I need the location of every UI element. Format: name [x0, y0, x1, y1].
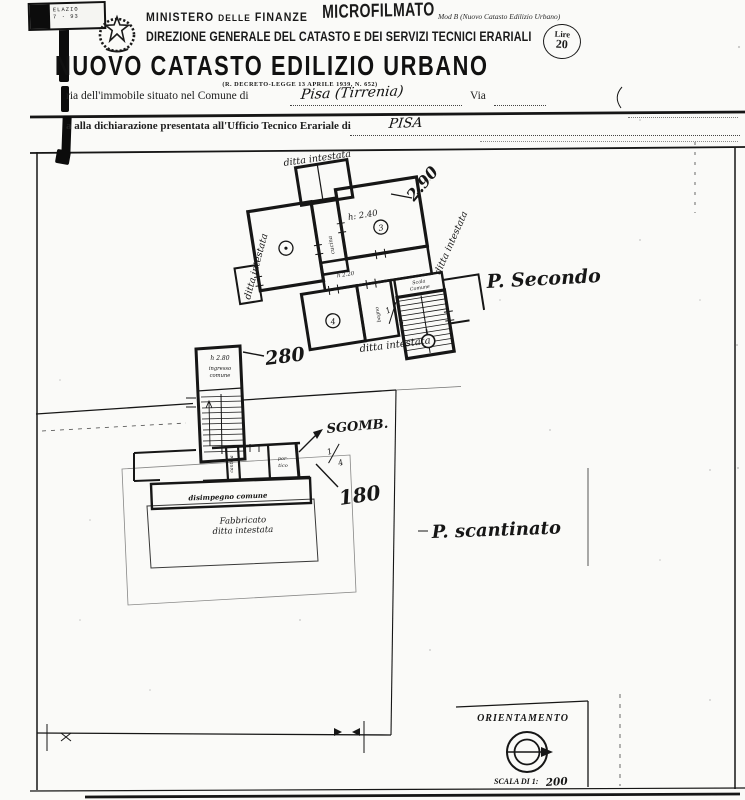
binding-mark — [55, 149, 71, 165]
extra-dotted-row-bottom — [480, 140, 738, 142]
direction-line: DIREZIONE GENERALE DEL CATASTO E DEI SER… — [146, 29, 532, 44]
fraction-one-fourth: 1 4 — [324, 444, 346, 471]
ministry-word: FINANZE — [251, 10, 308, 24]
comune-fill-line — [290, 104, 462, 106]
room-label-kitchen: cucina — [328, 235, 337, 254]
sgomb-label: SGOMB. — [326, 417, 389, 437]
ufficio-handwritten-value: PISA — [388, 115, 423, 132]
strip-label-line1: ingresso — [209, 366, 231, 372]
document-title: NUOVO CATASTO EDILIZIO URBANO — [55, 50, 489, 82]
parcel-boundary — [36, 387, 461, 754]
basement-plan: h 2.80 ingresso comune 280 cantina por- … — [122, 343, 389, 605]
room-label-portico-2: tico — [278, 463, 287, 469]
orientation-title: ORIENTAMENTO — [477, 713, 569, 724]
ufficio-fill-line — [350, 134, 740, 136]
height-dimension-180: 180 — [337, 480, 382, 510]
frame-borders — [30, 87, 745, 797]
microfilm-stamp: MICROFILMATO — [322, 0, 435, 24]
second-floor-title: P. Secondo — [485, 265, 602, 293]
fabbricato-label-2: ditta intestata — [212, 525, 273, 537]
via-label: Via — [470, 90, 486, 102]
ministry-word: MINISTERO — [146, 10, 218, 24]
ditta-intestata-bottom: ditta intestata — [359, 335, 431, 355]
mod-b-label: Mod B (Nuovo Catasto Edilizio Urbano) — [438, 12, 560, 21]
basement-title: P. scantinato — [430, 518, 561, 544]
orientation-box: ORIENTAMENTO SCALA DI 1: 200 — [456, 701, 588, 789]
ufficio-line-prefix: a alla dichiarazione presentata all'Uffi… — [66, 120, 351, 132]
room-height-note: h: 2.40 — [347, 208, 379, 223]
svg-text:1: 1 — [326, 447, 334, 457]
fee-amount: 20 — [544, 38, 581, 51]
extra-dotted-row-top — [628, 116, 738, 118]
document-subtitle: (R. DECRETO-LEGGE 13 APRILE 1939, N. 652… — [60, 81, 540, 88]
stamp-ink-block — [30, 4, 51, 29]
scan-noise — [59, 46, 740, 701]
scale-label: SCALA DI 1: — [494, 777, 539, 786]
via-fill-line — [494, 104, 546, 106]
svg-text:1: 1 — [384, 305, 392, 315]
scanned-document-page: h: 2.40 3 4 h 2.20 cucina bagno Scala Co… — [0, 0, 745, 800]
svg-text:4: 4 — [336, 458, 345, 468]
strip-height-note: h 2.80 — [210, 355, 229, 362]
strip-label-line2: comune — [210, 373, 231, 379]
room-label-cantina: cantina — [229, 455, 235, 473]
scale-value: 200 — [544, 775, 568, 789]
room-number: 3 — [378, 223, 384, 233]
ministry-line: MINISTERO DELLE FINANZE — [146, 10, 308, 24]
comune-line-prefix: ria dell'immobile situato nel Comune di — [66, 90, 249, 102]
ministry-word-small: DELLE — [218, 13, 251, 24]
room-number: 4 — [329, 317, 336, 327]
compass-icon — [506, 732, 553, 772]
height-dimension-290: 2.90 — [402, 163, 442, 206]
room-label-bath: bagno — [374, 306, 382, 322]
disimpegno-label: disimpegno comune — [188, 491, 268, 503]
ditta-intestata-right: ditta intestata — [433, 209, 471, 276]
height-dimension-280: 280 — [263, 343, 306, 370]
